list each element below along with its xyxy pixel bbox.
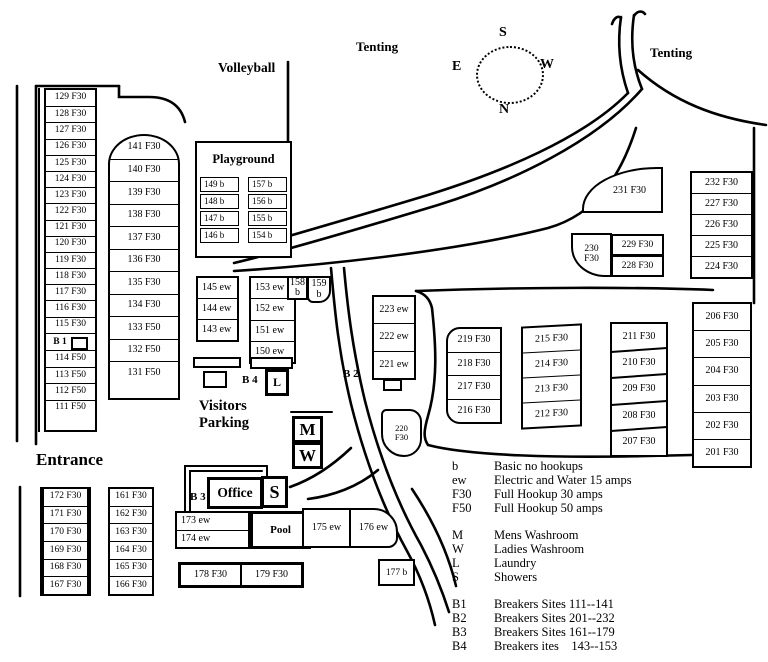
- site-cell: 121 F30: [46, 220, 95, 236]
- breaker-b2-box: [383, 379, 402, 391]
- site-cell: 122 F30: [46, 203, 95, 219]
- site-cell: 164 F30: [110, 541, 152, 559]
- legend-key: L: [452, 556, 494, 570]
- breaker-b4-label: B 4: [242, 374, 258, 387]
- laundry-building: L: [265, 369, 289, 396]
- legend-desc: Breakers Sites 111--141: [494, 597, 614, 611]
- breaker-b1-row: B 1: [46, 333, 95, 351]
- compass-south: S: [499, 25, 507, 41]
- site-cell: 209 F30: [612, 376, 666, 402]
- site-158: 158 b: [287, 276, 308, 300]
- legend-desc: Mens Washroom: [494, 528, 579, 542]
- site-cell: 140 F30: [110, 159, 178, 182]
- sites-215-212: 215 F30214 F30213 F30212 F30: [521, 323, 582, 429]
- site-cell: 218 F30: [448, 352, 500, 376]
- site-cell: 163 F30: [110, 523, 152, 541]
- site-cell: 219 F30: [448, 329, 500, 352]
- legend-key: B4: [452, 639, 494, 653]
- site-cell: 204 F30: [694, 357, 750, 384]
- site-cell: 155 b: [248, 211, 287, 226]
- site-cell: 205 F30: [694, 330, 750, 357]
- site-177: 177 b: [378, 559, 415, 586]
- legend-desc: Laundry: [494, 556, 536, 570]
- site-cell: 211 F30: [612, 324, 666, 350]
- site-cell: 222 ew: [374, 323, 414, 350]
- legend-desc: Basic no hookups: [494, 459, 583, 473]
- sites-157-154: 157 b156 b155 b154 b: [248, 177, 287, 245]
- legend-key: W: [452, 542, 494, 556]
- site-cell: 224 F30: [692, 256, 751, 277]
- sites-223-221: 223 ew222 ew221 ew: [372, 295, 416, 380]
- legend-desc: Full Hookup 30 amps: [494, 487, 603, 501]
- site-cell: 178 F30: [181, 565, 240, 585]
- sites-173-174: 173 ew174 ew: [175, 511, 250, 549]
- legend-desc: Full Hookup 50 amps: [494, 501, 603, 515]
- tenting-east-label: Tenting: [650, 46, 692, 61]
- site-cell: 125 F30: [46, 155, 95, 171]
- site-cell: 161 F30: [110, 489, 152, 506]
- site-cell: 141 F30: [110, 136, 178, 159]
- site-cell: 146 b: [200, 228, 239, 243]
- site-cell: 147 b: [200, 211, 239, 226]
- site-cell: 165 F30: [110, 559, 152, 577]
- site-cell: 149 b: [200, 177, 239, 192]
- sites-211-207: 211 F30210 F30209 F30208 F30207 F30: [610, 322, 668, 457]
- site-cell: 227 F30: [692, 193, 751, 214]
- legend-key: B2: [452, 611, 494, 625]
- site-cell: 117 F30: [46, 284, 95, 300]
- site-cell: 154 b: [248, 228, 287, 243]
- site-cell: 217 F30: [448, 375, 500, 399]
- sites-232-224: 232 F30227 F30226 F30225 F30224 F30: [690, 171, 753, 279]
- playground-area: Playground 149 b148 b147 b146 b 157 b156…: [195, 141, 292, 258]
- site-cell: 115 F30: [46, 317, 95, 333]
- site-cell: 112 F50: [46, 383, 95, 399]
- site-cell: 139 F30: [110, 181, 178, 204]
- site-cell: 179 F30: [240, 565, 301, 585]
- legend-desc: Breakers Sites 201--232: [494, 611, 615, 625]
- site-cell: 213 F30: [523, 375, 580, 403]
- site-cell: 171 F30: [42, 506, 89, 524]
- legend-key: B3: [452, 625, 494, 639]
- sites-206-201: 206 F30205 F30204 F30203 F30202 F30201 F…: [692, 302, 752, 468]
- site-cell: 202 F30: [694, 412, 750, 439]
- gate-road: [619, 17, 628, 93]
- site-cell: 138 F30: [110, 204, 178, 227]
- legend-desc: Breakers Sites 161--179: [494, 625, 615, 639]
- site-cell: 215 F30: [523, 326, 580, 353]
- sites-149-146: 149 b148 b147 b146 b: [200, 177, 239, 245]
- site-cell: 132 F50: [110, 339, 178, 362]
- site-cell: 116 F30: [46, 300, 95, 316]
- site-cell: 162 F30: [110, 506, 152, 524]
- site-228: 228 F30: [611, 255, 664, 277]
- site-cell: 134 F30: [110, 294, 178, 317]
- site-cell: 127 F30: [46, 122, 95, 138]
- site-229: 229 F30: [611, 234, 664, 256]
- sites-178-179: 178 F30179 F30: [178, 562, 304, 588]
- small-building: [203, 371, 227, 388]
- site-cell: 145 ew: [198, 278, 237, 298]
- site-cell: 118 F30: [46, 268, 95, 284]
- site-cell: 216 F30: [448, 399, 500, 423]
- legend-desc: Breakers ites 143--153: [494, 639, 617, 653]
- site-cell: 175 ew: [304, 510, 349, 546]
- legend-key: ew: [452, 473, 494, 487]
- site-cell: 136 F30: [110, 249, 178, 272]
- breaker-b1-label: B 1: [53, 337, 66, 347]
- sites-145-143: 145 ew144 ew143 ew: [196, 276, 239, 342]
- site-cell: 157 b: [248, 177, 287, 192]
- site-cell: 135 F30: [110, 271, 178, 294]
- compass-west: W: [540, 57, 554, 73]
- playground-site-columns: 149 b148 b147 b146 b 157 b156 b155 b154 …: [197, 175, 290, 245]
- volleyball-label: Volleyball: [218, 60, 275, 76]
- main-road: [234, 93, 628, 252]
- site-cell: 166 F30: [110, 576, 152, 594]
- tenting-west-label: Tenting: [356, 40, 398, 55]
- site-cell: 174 ew: [177, 530, 248, 548]
- site-cell: 137 F30: [110, 226, 178, 249]
- playground-label: Playground: [197, 143, 290, 175]
- legend-key: B1: [452, 597, 494, 611]
- site-cell: 201 F30: [694, 439, 750, 466]
- sites-column-161-166: 161 F30162 F30163 F30164 F30165 F30166 F…: [108, 487, 154, 596]
- sites-column-129-111: 129 F30128 F30127 F30126 F30125 F30124 F…: [44, 88, 97, 432]
- site-cell: 206 F30: [694, 304, 750, 330]
- legend-key: S: [452, 570, 494, 584]
- site-cell: 210 F30: [612, 350, 666, 376]
- site-cell: 226 F30: [692, 214, 751, 235]
- site-cell: 120 F30: [46, 236, 95, 252]
- site-cell: 111 F50: [46, 400, 95, 416]
- legend-key: F30: [452, 487, 494, 501]
- site-cell: 212 F30: [523, 400, 580, 428]
- site-cell: 129 F30: [46, 90, 95, 106]
- site-cell: 113 F50: [46, 367, 95, 383]
- visitors-parking-label: Visitors Parking: [199, 398, 249, 431]
- site-cell: 170 F30: [42, 523, 89, 541]
- site-cell: 176 ew: [349, 510, 396, 546]
- breaker-b3-label: B 3: [190, 491, 206, 504]
- laundry-letter: L: [273, 375, 281, 390]
- legend-facilities: MMens Washroom WLadies Washroom LLaundry…: [452, 528, 632, 584]
- legend-key: F50: [452, 501, 494, 515]
- showers-building: S: [261, 476, 288, 508]
- site-cell: 152 ew: [251, 298, 294, 319]
- site-cell: 223 ew: [374, 297, 414, 323]
- sites-219-216: 219 F30218 F30217 F30216 F30: [446, 327, 502, 424]
- legend-key: b: [452, 459, 494, 473]
- legend-hookups: bBasic no hookups ewElectric and Water 1…: [452, 459, 632, 515]
- legend-desc: Showers: [494, 570, 537, 584]
- compass-north: N: [499, 102, 509, 118]
- site-cell: 225 F30: [692, 235, 751, 256]
- legend-key: M: [452, 528, 494, 542]
- site-cell: 214 F30: [523, 350, 580, 378]
- site-220: 220 F30: [381, 409, 422, 457]
- site-cell: 167 F30: [42, 576, 89, 594]
- site-cell: 148 b: [200, 194, 239, 209]
- legend-desc: Ladies Washroom: [494, 542, 584, 556]
- entrance-label: Entrance: [36, 450, 103, 470]
- site-cell: 123 F30: [46, 187, 95, 203]
- site-cell: 156 b: [248, 194, 287, 209]
- breaker-b2-label: B 2: [343, 368, 359, 381]
- site-cell: 151 ew: [251, 320, 294, 341]
- office-building: Office: [207, 477, 263, 509]
- sites-column-141-131: 141 F30140 F30139 F30138 F30137 F30136 F…: [108, 134, 180, 400]
- compass-circle: [476, 46, 544, 104]
- site-159: 159 b: [307, 276, 331, 303]
- site-cell: 126 F30: [46, 139, 95, 155]
- structure-bar: [250, 357, 293, 369]
- ladies-washroom: W: [292, 442, 323, 469]
- site-cell: 128 F30: [46, 106, 95, 122]
- site-cell: 203 F30: [694, 385, 750, 412]
- site-cell: 114 F50: [46, 351, 95, 367]
- site-cell: 232 F30: [692, 173, 751, 193]
- breaker-box-icon: [71, 337, 88, 350]
- sites-175-176: 175 ew176 ew: [302, 508, 398, 548]
- site-cell: 124 F30: [46, 171, 95, 187]
- legend-breakers: B1Breakers Sites 111--141 B2Breakers Sit…: [452, 597, 632, 653]
- campground-map: Volleyball Tenting Tenting Visitors Park…: [0, 0, 768, 662]
- legend: bBasic no hookups ewElectric and Water 1…: [452, 459, 632, 662]
- site-cell: 207 F30: [612, 429, 666, 455]
- sites-column-172-167: 172 F30171 F30170 F30169 F30168 F30167 F…: [40, 487, 91, 596]
- site-cell: 221 ew: [374, 351, 414, 378]
- structure-bar: [193, 357, 241, 368]
- mens-washroom: M: [292, 416, 323, 443]
- site-cell: 169 F30: [42, 541, 89, 559]
- site-cell: 131 F50: [110, 361, 178, 384]
- site-cell: 172 F30: [42, 489, 89, 506]
- site-cell: 119 F30: [46, 252, 95, 268]
- site-cell: 143 ew: [198, 319, 237, 340]
- site-cell: 168 F30: [42, 559, 89, 577]
- compass-east: E: [452, 59, 461, 75]
- site-cell: 144 ew: [198, 298, 237, 319]
- site-cell: 208 F30: [612, 403, 666, 429]
- site-cell: 173 ew: [177, 513, 248, 530]
- legend-desc: Electric and Water 15 amps: [494, 473, 632, 487]
- site-cell: 133 F50: [110, 316, 178, 339]
